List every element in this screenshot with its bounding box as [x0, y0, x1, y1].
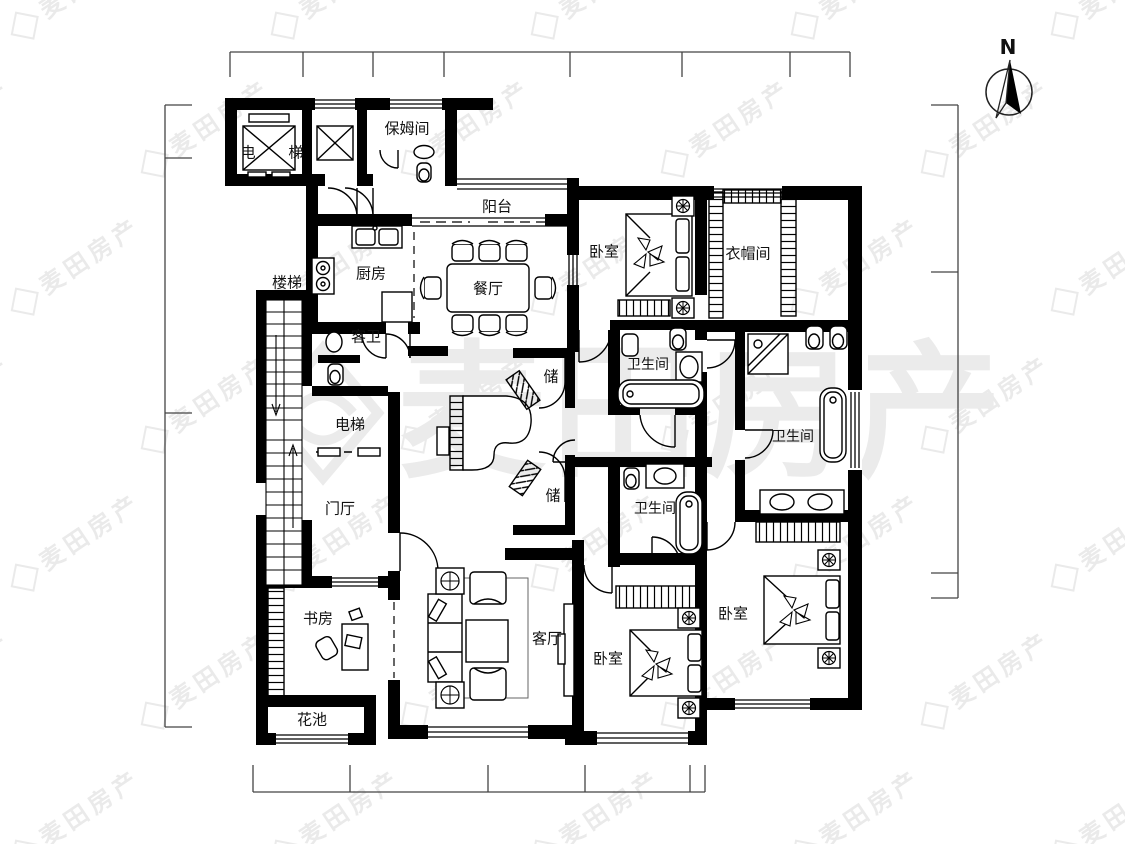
corridor-door [707, 340, 735, 368]
bath-right-door [745, 430, 773, 458]
kitchen-stove [312, 258, 334, 294]
living-door [400, 533, 438, 571]
room-label-elevator-shaft: 电 梯 [241, 142, 318, 163]
stairs [266, 300, 302, 585]
study-window [332, 578, 378, 586]
kitchen-door [386, 334, 410, 358]
bedroom-mid-door [584, 565, 612, 593]
dimension-bottom [253, 765, 705, 792]
bedroom-mid-furniture [616, 586, 702, 718]
room-label-bedroom-mid: 卧室 [593, 648, 623, 669]
flower-bed-window [276, 735, 348, 743]
room-label-bedroom-right: 卧室 [718, 603, 748, 624]
north-compass-icon [986, 60, 1032, 118]
balcony-window [457, 179, 567, 189]
bath-right-fixtures [748, 326, 847, 514]
room-label-cloakroom: 衣帽间 [725, 243, 770, 264]
private-elevator-doors [316, 448, 384, 456]
dimension-top [230, 52, 850, 77]
room-label-dining-room: 餐厅 [473, 278, 503, 299]
dimension-left [165, 105, 192, 727]
room-label-bedroom-top: 卧室 [589, 241, 619, 262]
room-label-guest-bath: 客卫 [351, 326, 381, 347]
bedroom-top-wardrobe [618, 300, 670, 316]
nanny-bath-fixtures [414, 146, 434, 183]
room-label-study: 书房 [303, 608, 333, 629]
room-label-stairs: 楼梯 [272, 272, 302, 293]
room-label-bath-top: 卫生间 [627, 354, 669, 374]
floor-plan-page: 麦田房产麦田房产麦田房产麦田房产麦田房产麦田房产麦田房产麦田房产麦田房产麦田房产… [0, 0, 1125, 844]
bedroom-right-furniture [756, 522, 840, 668]
bath-top-door [640, 415, 675, 447]
kitchen-sink [352, 226, 402, 248]
floorplan-svg [0, 0, 1125, 844]
room-label-flower-bed: 花池 [297, 709, 327, 730]
bedroom-right-window [735, 700, 810, 708]
room-label-private-elevator: 电梯 [335, 414, 365, 435]
north-label: N [1000, 35, 1017, 59]
nanny-door [380, 150, 398, 168]
dimension-right [931, 105, 958, 598]
room-label-living-room: 客厅 [532, 628, 562, 649]
bedroom-right-door [707, 522, 735, 550]
shaft-icon [317, 126, 353, 160]
bedroom-top-door [579, 330, 611, 362]
kitchen-counter [382, 292, 412, 322]
room-label-bath-mid: 卫生间 [634, 498, 676, 518]
piano [437, 396, 531, 470]
right-bath-window [848, 390, 862, 470]
room-label-bath-right: 卫生间 [772, 426, 814, 446]
room-label-balcony: 阳台 [482, 196, 512, 217]
bedroom-mid-window [597, 733, 688, 743]
room-label-storage-upper: 储 [543, 366, 558, 387]
balcony-sliding-door [412, 218, 567, 226]
room-label-kitchen: 厨房 [356, 263, 386, 284]
room-label-foyer: 门厅 [325, 498, 355, 519]
room-label-storage-lower: 储 [545, 485, 560, 506]
lobby-door [328, 188, 357, 217]
living-window [428, 727, 528, 737]
room-label-nanny-room: 保姆间 [384, 118, 429, 139]
balcony-door [345, 188, 373, 216]
dining-bedroom-window [569, 255, 577, 285]
study-furniture [268, 588, 368, 696]
